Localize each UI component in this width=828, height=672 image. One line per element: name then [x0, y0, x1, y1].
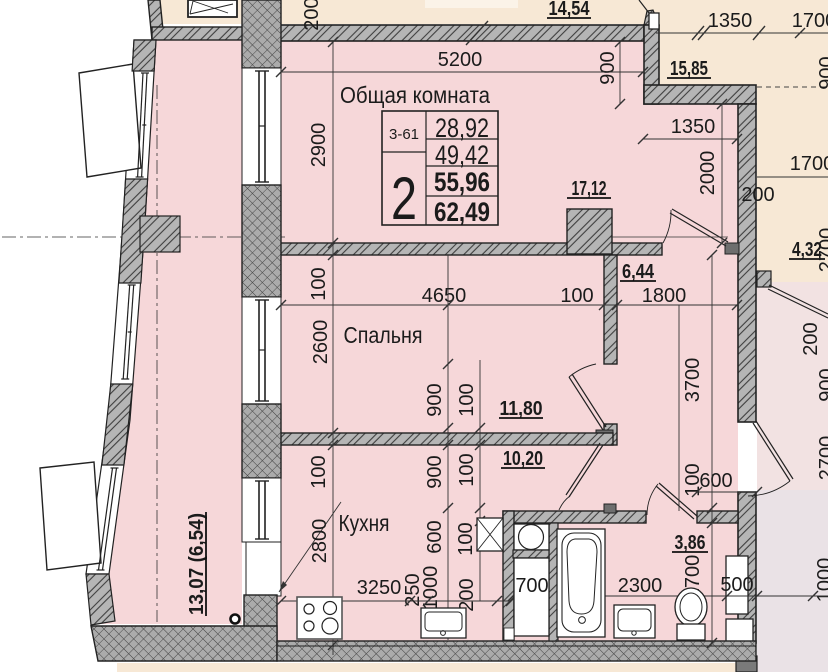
svg-text:900: 900: [816, 56, 828, 89]
svg-text:62,49: 62,49: [434, 197, 490, 227]
svg-text:700: 700: [515, 575, 548, 597]
svg-text:49,42: 49,42: [435, 140, 489, 170]
svg-text:100: 100: [308, 455, 330, 488]
svg-text:100: 100: [456, 383, 478, 416]
svg-text:900: 900: [424, 455, 446, 488]
svg-text:Спальня: Спальня: [344, 322, 423, 348]
svg-text:200: 200: [301, 0, 323, 31]
svg-text:200: 200: [800, 322, 822, 355]
svg-text:14,54: 14,54: [549, 0, 591, 20]
svg-text:900: 900: [816, 368, 828, 401]
svg-text:900: 900: [597, 51, 619, 84]
svg-text:200: 200: [456, 578, 478, 611]
svg-text:28,92: 28,92: [435, 113, 489, 143]
svg-text:100: 100: [455, 522, 477, 555]
svg-text:10,20: 10,20: [503, 448, 543, 470]
svg-text:1700: 1700: [790, 153, 828, 175]
svg-text:1800: 1800: [642, 285, 687, 307]
svg-text:15,85: 15,85: [670, 58, 708, 80]
svg-text:3,86: 3,86: [675, 532, 706, 554]
svg-text:100: 100: [560, 285, 593, 307]
svg-text:1000: 1000: [420, 566, 442, 611]
svg-text:2800: 2800: [309, 519, 331, 564]
svg-text:1700: 1700: [792, 10, 828, 32]
svg-text:600: 600: [699, 470, 732, 492]
svg-text:11,80: 11,80: [500, 398, 543, 420]
svg-text:13,07 (6,54): 13,07 (6,54): [186, 513, 208, 615]
svg-text:2600: 2600: [310, 320, 332, 365]
svg-text:1350: 1350: [708, 10, 753, 32]
svg-text:17,12: 17,12: [572, 178, 607, 200]
svg-text:Общая комната: Общая комната: [340, 82, 490, 108]
svg-text:4650: 4650: [422, 285, 467, 307]
svg-text:1350: 1350: [671, 116, 716, 138]
svg-text:3250: 3250: [357, 577, 402, 599]
svg-text:2300: 2300: [618, 575, 663, 597]
svg-text:3700: 3700: [682, 358, 704, 403]
svg-text:Кухня: Кухня: [339, 510, 390, 536]
svg-text:6,44: 6,44: [622, 261, 655, 283]
svg-text:500: 500: [720, 574, 753, 596]
svg-text:2900: 2900: [308, 123, 330, 168]
svg-text:100: 100: [456, 453, 478, 486]
svg-text:200: 200: [741, 184, 774, 206]
svg-text:2700: 2700: [816, 228, 828, 273]
svg-text:600: 600: [424, 520, 446, 553]
svg-text:2700: 2700: [816, 436, 828, 481]
svg-text:900: 900: [424, 383, 446, 416]
svg-text:100: 100: [308, 267, 330, 300]
svg-text:2000: 2000: [697, 151, 719, 196]
svg-text:2: 2: [391, 165, 417, 232]
svg-text:5200: 5200: [438, 49, 483, 71]
svg-text:55,96: 55,96: [434, 167, 490, 197]
svg-text:3-61: 3-61: [389, 126, 419, 143]
